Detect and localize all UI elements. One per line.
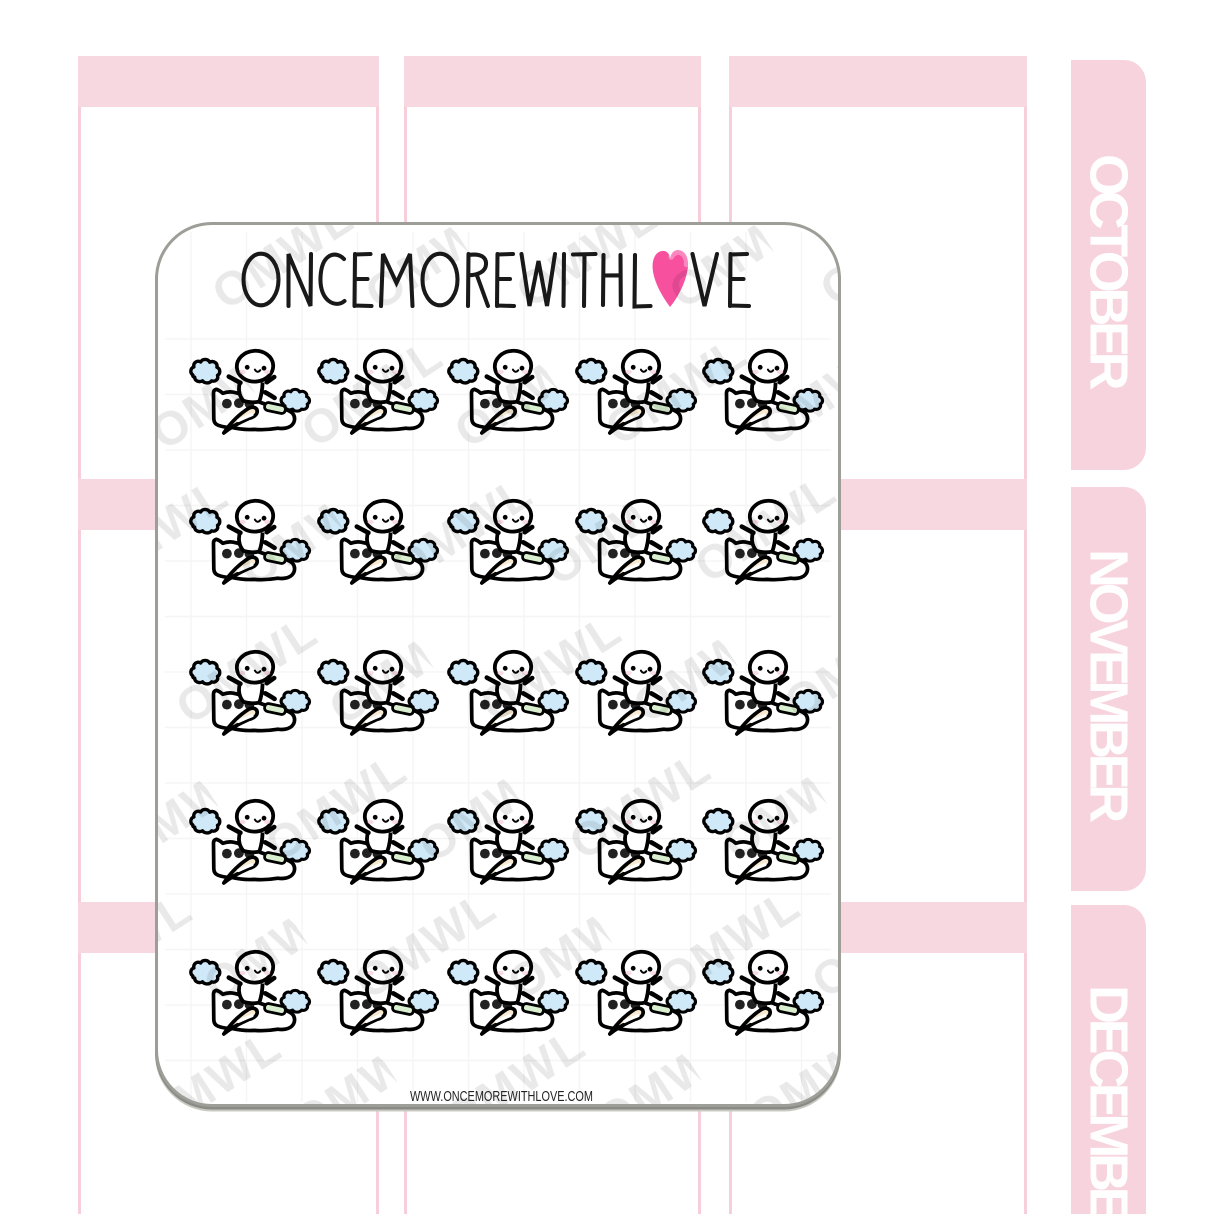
svg-text:WWW.ONCEMOREWITHLOVE.COM: WWW.ONCEMOREWITHLOVE.COM xyxy=(410,1088,593,1105)
